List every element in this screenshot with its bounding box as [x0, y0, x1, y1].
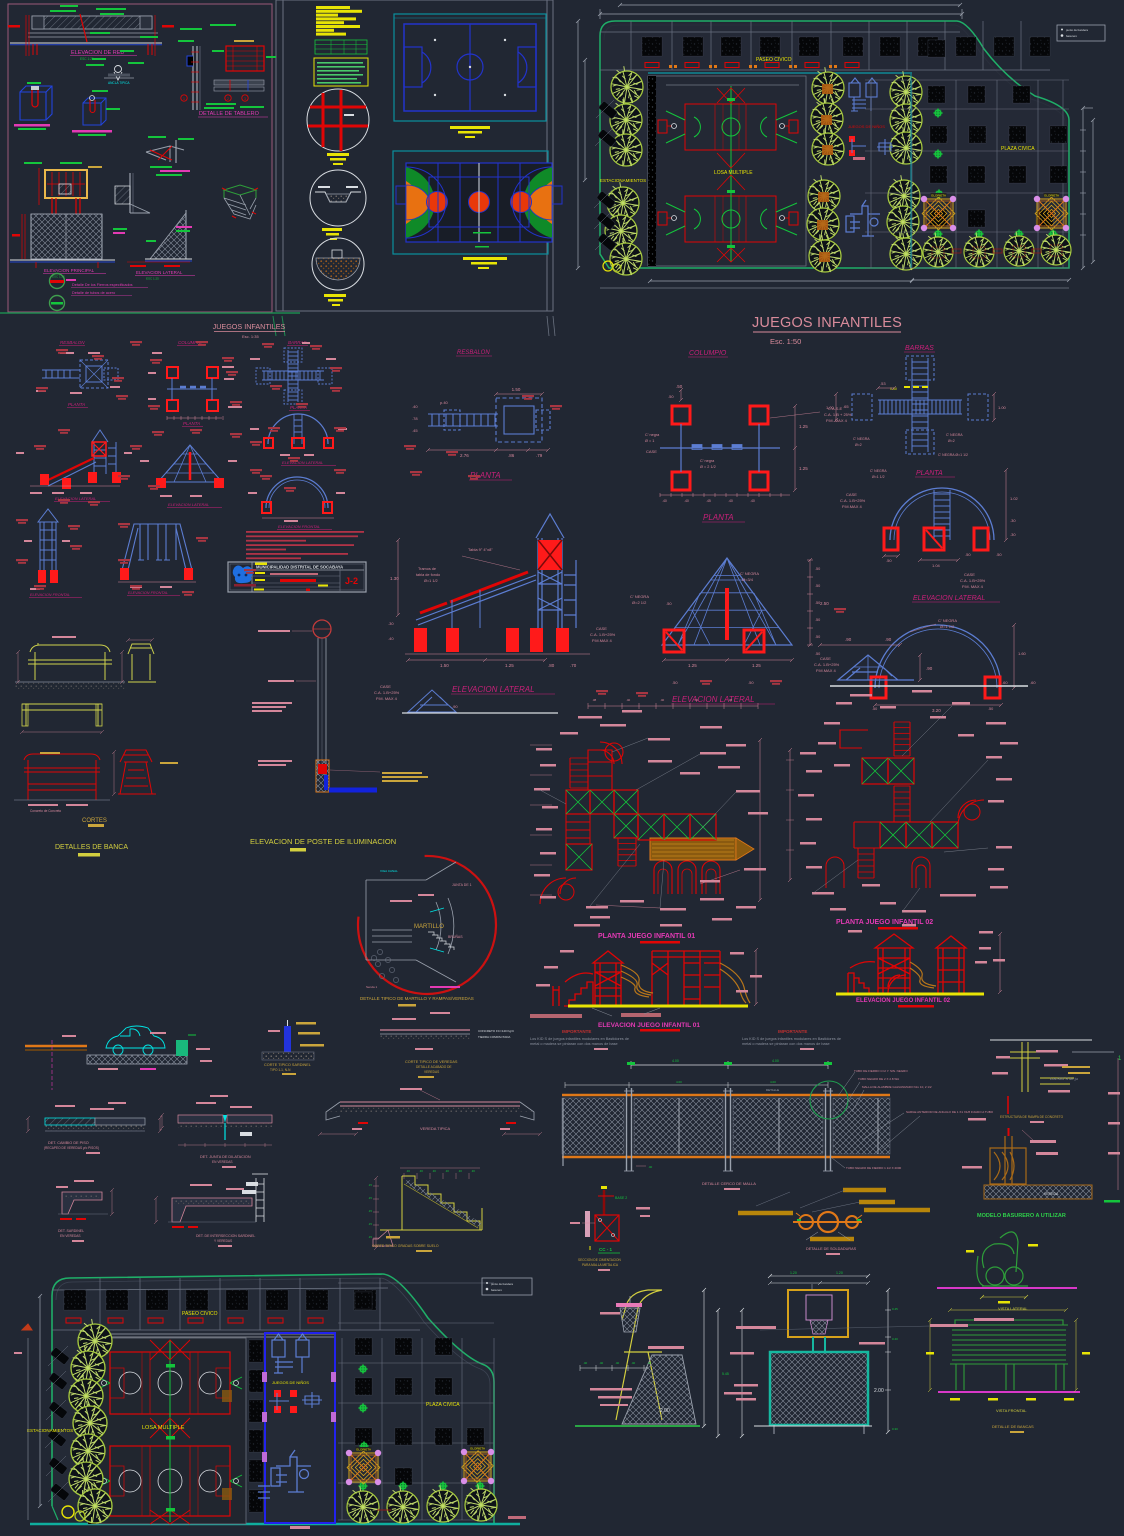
svg-text:GLORIETA: GLORIETA [470, 1447, 485, 1451]
svg-text:4.00: 4.00 [676, 1080, 682, 1084]
svg-text:.40: .40 [728, 499, 733, 503]
svg-text:C' NEGRA: C' NEGRA [630, 594, 649, 599]
svg-text:Ø = 2 1/2: Ø = 2 1/2 [700, 465, 716, 469]
svg-text:0.45: 0.45 [892, 1307, 898, 1311]
svg-text:1.25: 1.25 [688, 663, 697, 668]
svg-text:DETALLES DE BANCA: DETALLES DE BANCA [55, 844, 128, 851]
svg-text:tabla de fondo: tabla de fondo [416, 573, 440, 577]
svg-text:1.25: 1.25 [505, 663, 514, 668]
svg-text:VEREDAS: VEREDAS [424, 1070, 439, 1074]
svg-text:.60: .60 [1002, 680, 1008, 685]
svg-text:PLAZA CIVICA: PLAZA CIVICA [426, 1402, 460, 1408]
svg-text:Los KID S de juegos infantiles: Los KID S de juegos infantiles modulares… [530, 1037, 629, 1041]
svg-text:1.25: 1.25 [799, 466, 808, 471]
svg-text:1.00: 1.00 [826, 405, 835, 410]
svg-text:.50: .50 [815, 584, 820, 588]
svg-text:P.M.MAX 4: P.M.MAX 4 [842, 504, 862, 509]
svg-text:2: 2 [227, 97, 229, 101]
svg-text:TUBO DE FIERRO C=2 Y. SIN. NEG: TUBO DE FIERRO C=2 Y. SIN. NEGRO [854, 1069, 908, 1073]
svg-text:P.M. MAX 4: P.M. MAX 4 [826, 418, 848, 423]
svg-text:Tramos de: Tramos de [418, 567, 436, 571]
svg-text:.78: .78 [412, 416, 418, 421]
svg-text:4.00: 4.00 [770, 1080, 776, 1084]
svg-text:.50: .50 [988, 707, 993, 711]
svg-text:ELEVACION DE POSTE DE ILUMINAC: ELEVACION DE POSTE DE ILUMINACION [250, 837, 396, 846]
svg-text:.90: .90 [452, 704, 458, 709]
svg-text:Ø=1 1/2: Ø=1 1/2 [940, 624, 955, 629]
svg-text:.40: .40 [647, 1361, 652, 1365]
svg-text:Tabla 9" 4"x8": Tabla 9" 4"x8" [468, 547, 493, 552]
svg-text:.30: .30 [406, 1169, 410, 1173]
svg-text:ESTRUCTURA DE RAMPA DE CONCRET: ESTRUCTURA DE RAMPA DE CONCRETO [1000, 1115, 1064, 1119]
svg-text:4.00: 4.00 [772, 1059, 779, 1063]
svg-text:Ø=3/4: Ø=3/4 [742, 577, 754, 582]
svg-text:C' negra: C' negra [645, 433, 660, 437]
svg-text:ESC 1:25: ESC 1:25 [80, 57, 94, 61]
svg-text:.90: .90 [885, 637, 892, 642]
svg-text:CASE: CASE [596, 626, 607, 631]
svg-text:2.76: 2.76 [460, 453, 469, 458]
svg-text:.40: .40 [388, 636, 394, 641]
svg-text:metal o madera se pintaran co: metal o madera se pintaran con dos manos… [530, 1042, 618, 1046]
svg-text:C.A. 1.B+25%: C.A. 1.B+25% [960, 578, 986, 583]
svg-text:RESBALON: RESBALON [60, 340, 85, 345]
svg-text:DET. CAMBIO DE PISO: DET. CAMBIO DE PISO [48, 1141, 89, 1145]
svg-text:VIGA CANAL: VIGA CANAL [380, 869, 398, 873]
svg-text:.40: .40 [599, 1361, 604, 1365]
svg-text:C.A. 1.B+25%: C.A. 1.B+25% [840, 498, 866, 503]
svg-text:MUNICIPALIDAD DISTRITAL DE SOC: MUNICIPALIDAD DISTRITAL DE SOCABAYA [256, 565, 343, 570]
svg-text:.38: .38 [728, 698, 733, 702]
svg-text:C' NEGRA: C' NEGRA [938, 618, 957, 623]
svg-text:Ø=1 1/2: Ø=1 1/2 [424, 579, 438, 583]
svg-text:ANCLA TIPICA: ANCLA TIPICA [108, 81, 130, 85]
svg-text:.40: .40 [615, 1361, 620, 1365]
svg-text:(RECAPEO DE VEREDAS y/o PISOS): (RECAPEO DE VEREDAS y/o PISOS) [44, 1146, 99, 1150]
svg-text:.50: .50 [872, 707, 877, 711]
svg-text:ESTACIONAMIENTOS: ESTACIONAMIENTOS [27, 1428, 73, 1433]
svg-text:.40: .40 [660, 698, 665, 702]
svg-text:0.30: 0.30 [892, 1427, 898, 1431]
svg-text:DET. SARDINEL: DET. SARDINEL [58, 1229, 84, 1233]
svg-text:ELEVACION JUEGO INFANTIL 02: ELEVACION JUEGO INFANTIL 02 [856, 998, 951, 1004]
svg-text:PLANTA: PLANTA [703, 513, 734, 522]
svg-text:LOSA MULTIPLE: LOSA MULTIPLE [142, 1425, 185, 1431]
svg-text:.30: .30 [388, 621, 394, 626]
svg-text:.30: .30 [471, 1169, 475, 1173]
svg-text:JUNTA DE 1: JUNTA DE 1 [452, 883, 472, 887]
svg-text:CASE: CASE [964, 572, 975, 577]
svg-text:CC - 1: CC - 1 [599, 1247, 612, 1252]
svg-text:SARGE ANTERIOR DE ANGULO DE 1: SARGE ANTERIOR DE ANGULO DE 1 X1 X1/8 FI… [906, 1110, 994, 1114]
svg-text:.50: .50 [965, 552, 971, 557]
svg-text:.15: .15 [368, 1222, 372, 1226]
svg-text:.90: .90 [845, 637, 852, 642]
svg-text:.45: .45 [706, 499, 711, 503]
svg-text:ELEVACION LATERAL: ELEVACION LATERAL [672, 695, 755, 704]
svg-text:JUEGOS INFANTILES: JUEGOS INFANTILES [752, 315, 902, 331]
svg-text:PLAZA CIVICA: PLAZA CIVICA [1001, 146, 1035, 152]
svg-text:.50: .50 [815, 618, 820, 622]
svg-text:.38: .38 [592, 698, 597, 702]
svg-text:ELEVACION LATERAL: ELEVACION LATERAL [168, 502, 209, 507]
svg-text:P.M. MAX 4: P.M. MAX 4 [962, 584, 984, 589]
svg-text:p.40: p.40 [440, 400, 449, 405]
svg-text:Detalle de tubos de acero: Detalle de tubos de acero [72, 291, 115, 295]
svg-text:BARRAS: BARRAS [905, 345, 934, 352]
svg-text:Ø=2 1/2: Ø=2 1/2 [632, 600, 647, 605]
svg-text:3: 3 [244, 97, 246, 101]
svg-text:Ø=1 1/2: Ø=1 1/2 [872, 475, 885, 479]
svg-text:1.20: 1.20 [836, 1271, 843, 1275]
svg-text:ELEVACION DE RED: ELEVACION DE RED [71, 50, 124, 56]
svg-text:.50: .50 [996, 552, 1002, 557]
svg-text:IMPORTANTE: IMPORTANTE [562, 1029, 591, 1034]
svg-text:PLANTA: PLANTA [916, 470, 943, 477]
svg-text:ELEVACION FRONTAL: ELEVACION FRONTAL [128, 591, 168, 595]
svg-text:VISTA FRONTAL: VISTA FRONTAL [996, 1408, 1027, 1413]
svg-text:.90: .90 [926, 666, 933, 671]
svg-text:PLANTA: PLANTA [183, 421, 200, 426]
svg-text:.50: .50 [815, 567, 820, 571]
svg-text:DETALLE: DETALLE [766, 1088, 779, 1092]
svg-text:.40: .40 [684, 499, 689, 503]
svg-text:C' NEGRA: C' NEGRA [853, 437, 870, 441]
svg-text:ELEVACION JUEGO INFANTIL 01: ELEVACION JUEGO INFANTIL 01 [598, 1022, 700, 1029]
svg-text:Senda 1: Senda 1 [366, 985, 378, 989]
svg-text:P.M.MAX 4: P.M.MAX 4 [592, 638, 612, 643]
svg-text:.30: .30 [1010, 532, 1016, 537]
svg-text:3.20: 3.20 [932, 708, 941, 713]
svg-text:4.00: 4.00 [672, 1059, 679, 1063]
svg-text:1.25: 1.25 [799, 424, 808, 429]
svg-text:TIPO 1-1, N-N: TIPO 1-1, N-N [270, 1068, 291, 1072]
svg-text:BASE 2: BASE 2 [615, 1196, 627, 1200]
svg-text:Esc. 1:35: Esc. 1:35 [242, 334, 259, 339]
svg-text:.40: .40 [583, 1361, 588, 1365]
svg-text:MARTILLO: MARTILLO [414, 924, 444, 930]
svg-text:.30: .30 [432, 1169, 436, 1173]
svg-text:Detalle De los Fierros especif: Detalle De los Fierros especificados [72, 283, 133, 287]
svg-text:Ø=2: Ø=2 [948, 439, 955, 443]
svg-text:IMPORTANTE: IMPORTANTE [778, 1029, 807, 1034]
svg-text:BRUÑAS: BRUÑAS [448, 934, 463, 939]
svg-text:.40: .40 [694, 698, 699, 702]
svg-text:C.A. 1.B + 25%: C.A. 1.B + 25% [824, 412, 852, 417]
svg-text:.15: .15 [368, 1196, 372, 1200]
svg-text:CASE: CASE [820, 656, 831, 661]
svg-text:ELEVACION LATERAL: ELEVACION LATERAL [913, 595, 985, 602]
svg-text:1.50: 1.50 [512, 387, 521, 392]
svg-text:C' NEGRA: C' NEGRA [870, 469, 887, 473]
svg-text:1: 1 [183, 97, 185, 101]
svg-text:.50: .50 [676, 384, 683, 389]
svg-text:2.50: 2.50 [820, 601, 829, 606]
svg-text:.30: .30 [445, 1169, 449, 1173]
svg-text:MODELO BASURERO A UTILIZAR: MODELO BASURERO A UTILIZAR [977, 1213, 1066, 1219]
svg-text:.50: .50 [815, 635, 820, 639]
svg-text:punto de bandera: punto de bandera [491, 1282, 513, 1286]
svg-text:1.30: 1.30 [390, 576, 399, 581]
svg-text:.45: .45 [412, 428, 418, 433]
svg-text:C' negra: C' negra [700, 459, 715, 463]
svg-text:Los KID S de juegos infantiles: Los KID S de juegos infantiles modulares… [742, 1037, 841, 1041]
svg-text:.40: .40 [631, 1361, 636, 1365]
svg-text:.15: .15 [368, 1209, 372, 1213]
svg-text:1.04: 1.04 [932, 563, 941, 568]
svg-text:DET. JUNTA DE DILATACION: DET. JUNTA DE DILATACION [200, 1155, 251, 1159]
svg-text:1.50: 1.50 [440, 663, 449, 668]
svg-text:.15: .15 [368, 1183, 372, 1187]
svg-text:DETALLE TIPICO DE MARTILLO Y R: DETALLE TIPICO DE MARTILLO Y RAMPAS/VERE… [360, 996, 474, 1001]
svg-text:.40: .40 [662, 499, 667, 503]
svg-text:GLORIETA: GLORIETA [1044, 194, 1059, 198]
svg-text:ELEVACION FRONTAL: ELEVACION FRONTAL [278, 524, 320, 529]
svg-text:.65: .65 [843, 404, 849, 409]
svg-text:1.60: 1.60 [1018, 651, 1027, 656]
svg-text:.40: .40 [750, 499, 755, 503]
svg-text:.60: .60 [1030, 680, 1036, 685]
svg-text:DET. DE INTERSECCION SARDINEL: DET. DE INTERSECCION SARDINEL [196, 1234, 255, 1238]
svg-text:CORTES: CORTES [82, 818, 107, 824]
svg-text:.50: .50 [668, 394, 674, 399]
svg-text:1.20: 1.20 [790, 1271, 797, 1275]
svg-text:basurero: basurero [1066, 34, 1077, 38]
svg-text:DETALLE DE SOLDADURAS: DETALLE DE SOLDADURAS [806, 1247, 857, 1251]
svg-text:.15: .15 [368, 1235, 372, 1239]
svg-text:1.00: 1.00 [998, 405, 1007, 410]
svg-text:LOSA MULTIPLE: LOSA MULTIPLE [714, 170, 753, 176]
svg-text:TIERRA COMPACTADA: TIERRA COMPACTADA [478, 1035, 510, 1039]
svg-text:1.25: 1.25 [752, 663, 761, 668]
svg-text:PASEO CIVICO: PASEO CIVICO [182, 1311, 218, 1317]
svg-text:SECCION DE CIMENTACION: SECCION DE CIMENTACION [578, 1258, 621, 1262]
svg-text:J-2: J-2 [345, 576, 358, 586]
svg-text:PLANTA JUEGO INFANTIL 01: PLANTA JUEGO INFANTIL 01 [598, 933, 695, 940]
svg-text:Y VEREDAS: Y VEREDAS [214, 1239, 232, 1243]
svg-text:.70: .70 [570, 663, 577, 668]
svg-text:Ø=2: Ø=2 [855, 443, 862, 447]
svg-text:EN VEREDAS: EN VEREDAS [212, 1160, 233, 1164]
svg-text:JUEGOS DE NIÑOS: JUEGOS DE NIÑOS [272, 1380, 309, 1385]
svg-text:ELEVACION LATERAL: ELEVACION LATERAL [282, 460, 323, 465]
svg-text:C' NEGRA: C' NEGRA [946, 433, 963, 437]
svg-text:VEREDA TIPICA: VEREDA TIPICA [420, 1126, 450, 1131]
svg-text:2.00: 2.00 [660, 1408, 670, 1414]
svg-text:P.M. MAX 4: P.M. MAX 4 [376, 696, 398, 701]
svg-text:.86: .86 [508, 453, 515, 458]
svg-text:ELEVACION PRINCIPAL: ELEVACION PRINCIPAL [44, 268, 95, 273]
svg-text:CORTE TIPICO SARDINEL: CORTE TIPICO SARDINEL [264, 1063, 311, 1067]
svg-text:COLUMPIO: COLUMPIO [689, 350, 727, 357]
svg-text:C' NEGRA Ø=1 1/2: C' NEGRA Ø=1 1/2 [938, 453, 968, 457]
svg-text:ESTACIONAMIENTOS: ESTACIONAMIENTOS [600, 178, 646, 183]
svg-text:ESC 1:25: ESC 1:25 [146, 277, 159, 281]
svg-text:CORTE TIPICO GRADAS SOBRE SUEL: CORTE TIPICO GRADAS SOBRE SUELO [372, 1244, 439, 1248]
svg-text:1.02: 1.02 [1010, 496, 1019, 501]
svg-text:P.M.MAX 4: P.M.MAX 4 [816, 668, 836, 673]
svg-text:EN VEREDAS: EN VEREDAS [60, 1234, 81, 1238]
svg-text:DETALLE DE TABLERO: DETALLE DE TABLERO [199, 111, 260, 117]
svg-text:Esc. 1:50: Esc. 1:50 [770, 337, 801, 346]
svg-text:.80: .80 [548, 663, 555, 668]
svg-text:.40: .40 [626, 698, 631, 702]
svg-text:.50: .50 [672, 680, 678, 685]
svg-text:.50: .50 [886, 558, 892, 563]
svg-text:.50: .50 [666, 601, 672, 606]
svg-text:Ø = 1: Ø = 1 [645, 439, 654, 443]
svg-text:DETALLE CERCO DE MALLA: DETALLE CERCO DE MALLA [702, 1181, 756, 1186]
svg-text:C.A. 1.B+25%: C.A. 1.B+25% [814, 662, 840, 667]
svg-text:.53: .53 [880, 381, 886, 386]
svg-text:MALLA DE ALAMBRE GALVANIZADO: MALLA DE ALAMBRE GALVANIZADO Nro 10, 2 1… [862, 1085, 932, 1089]
svg-text:CASE: CASE [380, 684, 391, 689]
svg-text:basurero: basurero [491, 1288, 502, 1292]
svg-text:ELEVACION LATERAL: ELEVACION LATERAL [136, 270, 183, 275]
svg-text:.79: .79 [536, 453, 543, 458]
svg-text:ELEVACION LATERAL: ELEVACION LATERAL [452, 685, 535, 694]
svg-text:PLANTA: PLANTA [68, 402, 85, 407]
svg-text:2.00: 2.00 [874, 1388, 884, 1394]
svg-text:.50: .50 [748, 680, 754, 685]
svg-text:CORTE TIPICO DE VEREDAS: CORTE TIPICO DE VEREDAS [405, 1060, 458, 1064]
svg-text:.30: .30 [458, 1169, 462, 1173]
svg-text:DETALLE ACABADO DE: DETALLE ACABADO DE [416, 1065, 452, 1069]
svg-text:metal o madera se pintaran co: metal o madera se pintaran con dos manos… [742, 1042, 830, 1046]
svg-text:TUBO NEGRO DE 2 X 2.8 WA: TUBO NEGRO DE 2 X 2.8 WA [858, 1077, 899, 1081]
svg-text:GLORIETA: GLORIETA [931, 194, 946, 198]
svg-text:JUEGOS DE NIÑOS: JUEGOS DE NIÑOS [848, 124, 885, 129]
svg-text:CASE: CASE [646, 449, 657, 454]
svg-text:GLORIETA: GLORIETA [356, 1448, 371, 1452]
svg-text:VEREDA: VEREDA [1044, 1192, 1059, 1196]
svg-text:0.30: 0.30 [890, 387, 897, 391]
svg-text:Concreto de Concreto: Concreto de Concreto [30, 809, 61, 813]
svg-text:ELEVACION FRONTAL: ELEVACION FRONTAL [30, 593, 70, 597]
svg-text:C.A. 1.B+25%: C.A. 1.B+25% [374, 690, 400, 695]
svg-text:PLANTA JUEGO INFANTIL 02: PLANTA JUEGO INFANTIL 02 [836, 919, 933, 926]
svg-text:CASE: CASE [846, 492, 857, 497]
svg-text:C' NEGRA: C' NEGRA [740, 571, 759, 576]
svg-text:punto de bandera: punto de bandera [1066, 28, 1088, 32]
svg-text:5.45: 5.45 [722, 1372, 729, 1376]
svg-text:C.A. 1.B+25%: C.A. 1.B+25% [590, 632, 616, 637]
svg-text:.40: .40 [648, 1165, 653, 1169]
svg-text:JUEGOS INFANTILES: JUEGOS INFANTILES [213, 322, 286, 331]
svg-text:.30: .30 [419, 1169, 423, 1173]
svg-text:PARA MALLA METALICA: PARA MALLA METALICA [582, 1263, 619, 1267]
svg-text:.40: .40 [412, 404, 418, 409]
svg-text:DETALLE DE BANCAS: DETALLE DE BANCAS [992, 1424, 1034, 1429]
svg-text:RESBALON: RESBALON [457, 350, 490, 356]
svg-text:TUBO NEGRO DE FIERRO 1 1/2 X 2: TUBO NEGRO DE FIERRO 1 1/2 X 2000 [846, 1166, 902, 1170]
svg-text:Los KID S de ju: Los KID S de ju [1050, 1076, 1078, 1081]
svg-text:CONCRETO FC=140 Kg/C: CONCRETO FC=140 Kg/C [478, 1029, 515, 1033]
svg-text:0.40: 0.40 [892, 1337, 898, 1341]
svg-text:.30: .30 [1010, 518, 1016, 523]
